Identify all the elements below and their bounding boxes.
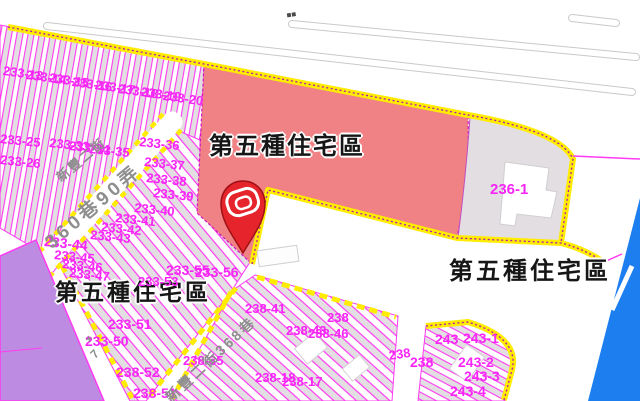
map-pin[interactable] xyxy=(221,181,265,253)
map-canvas[interactable]: 第五種住宅區第五種住宅區第五種住宅區233-13233-14233-15233-… xyxy=(0,0,640,401)
pin-layer xyxy=(0,0,640,401)
